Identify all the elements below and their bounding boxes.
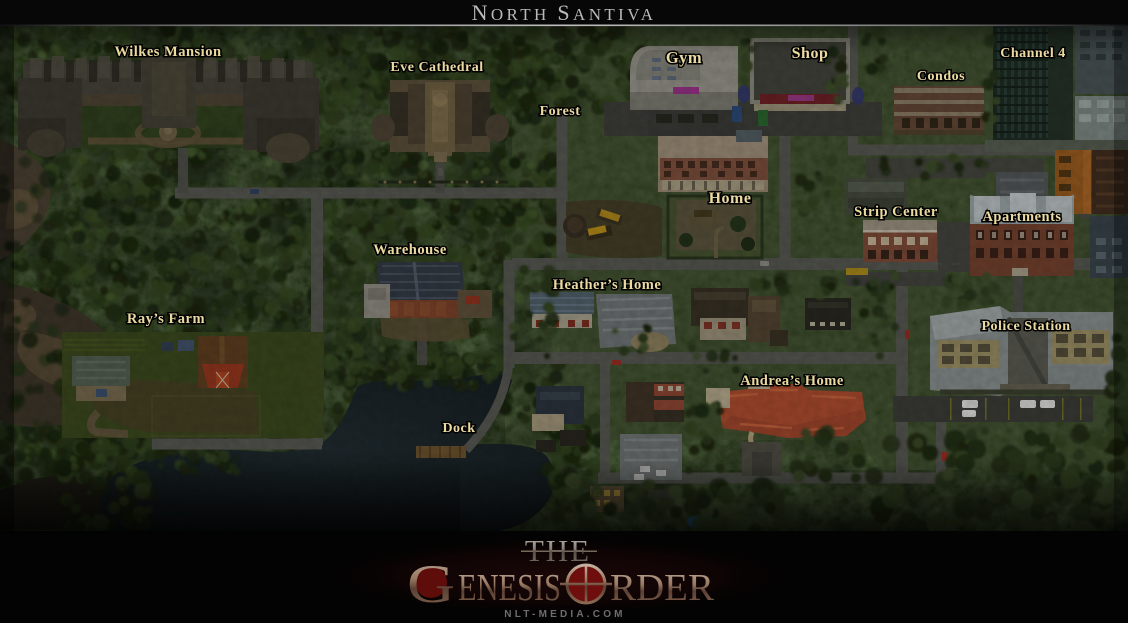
svg-text:Channel 4: Channel 4 xyxy=(1000,46,1066,61)
svg-text:RDER: RDER xyxy=(610,567,715,609)
svg-text:Warehouse: Warehouse xyxy=(373,242,447,258)
svg-text:Apartments: Apartments xyxy=(982,209,1061,225)
svg-text:Police Station: Police Station xyxy=(981,319,1070,334)
svg-text:NLT-MEDIA.COM: NLT-MEDIA.COM xyxy=(504,609,625,620)
svg-text:G: G xyxy=(407,554,455,614)
svg-text:Ray’s Farm: Ray’s Farm xyxy=(127,311,205,327)
svg-text:Wilkes Mansion: Wilkes Mansion xyxy=(114,44,221,60)
svg-text:Eve Cathedral: Eve Cathedral xyxy=(390,60,483,75)
svg-text:Gym: Gym xyxy=(666,48,702,67)
svg-text:ENESIS: ENESIS xyxy=(458,567,561,609)
svg-text:Forest: Forest xyxy=(540,104,581,119)
svg-text:Shop: Shop xyxy=(792,45,829,62)
svg-text:Dock: Dock xyxy=(442,421,475,436)
svg-text:Heather’s Home: Heather’s Home xyxy=(553,277,662,293)
svg-text:Strip Center: Strip Center xyxy=(854,204,938,220)
svg-text:Andrea’s Home: Andrea’s Home xyxy=(740,373,844,389)
svg-text:THE: THE xyxy=(525,533,591,568)
svg-text:Home: Home xyxy=(709,190,752,207)
svg-text:Condos: Condos xyxy=(917,69,965,84)
